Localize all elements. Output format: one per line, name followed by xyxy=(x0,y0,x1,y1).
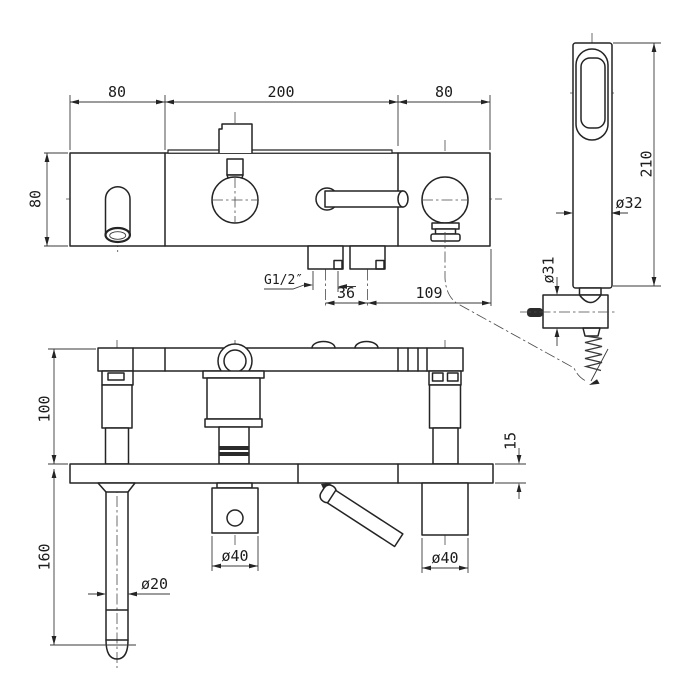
knob-stem xyxy=(227,159,243,175)
right-valve-stem xyxy=(433,428,458,464)
center-flange xyxy=(203,371,264,378)
dim-deck-thickness: 15 xyxy=(502,432,520,450)
inlet-fitting-2 xyxy=(350,246,385,269)
dim-handle-diameter: ø32 xyxy=(615,194,642,212)
dim-right-valve-diameter: ø40 xyxy=(431,549,458,567)
height-dim-lines xyxy=(44,153,68,246)
top-plate xyxy=(168,150,392,153)
thread-label: G1/2″ xyxy=(264,273,303,288)
dim-shower-length: 210 xyxy=(638,150,656,177)
faucet-technical-drawing: 80 200 80 80 G1/2″ 36 109 xyxy=(0,0,700,700)
dim-outlet-offset: 109 xyxy=(415,284,442,302)
dim-bracket-diameter: ø31 xyxy=(540,256,558,283)
lever-rod xyxy=(325,191,403,207)
technical-drawing-canvas: 80 200 80 80 G1/2″ 36 109 xyxy=(0,0,700,700)
center-seal-1 xyxy=(219,446,249,450)
center-lip xyxy=(205,419,262,427)
lever-grip xyxy=(328,490,403,546)
inlet-fitting-1 xyxy=(308,246,343,269)
left-valve-body xyxy=(102,385,132,428)
below-deck-dim-lines xyxy=(50,469,136,645)
left-valve-stem xyxy=(106,428,129,464)
above-deck-dim-lines xyxy=(48,349,96,464)
bracket-pin xyxy=(527,308,543,317)
hose-cone xyxy=(583,328,600,336)
shower-handle xyxy=(573,43,612,288)
dim-inlet-spacing: 36 xyxy=(337,284,355,302)
diverter-collar-1 xyxy=(432,223,459,229)
dim-width-center: 200 xyxy=(267,83,294,101)
deck-dim-lines xyxy=(495,448,526,499)
cartridge-block xyxy=(219,124,252,153)
wall-bracket xyxy=(543,295,608,328)
diverter-outlet xyxy=(431,234,460,241)
side-view xyxy=(70,340,493,668)
center-body xyxy=(207,378,260,419)
hose-arrow xyxy=(589,379,600,385)
dim-body-height: 80 xyxy=(27,190,45,208)
dim-pipe-diameter: ø20 xyxy=(141,575,168,593)
shower-neck xyxy=(580,288,602,295)
pipe-flare xyxy=(98,483,135,492)
deck-plate xyxy=(70,464,493,483)
underdeck-lever xyxy=(318,483,404,548)
top-extension-lines xyxy=(70,95,490,150)
dim-left-valve-diameter: ø40 xyxy=(221,547,248,565)
dim-length-below-deck: 160 xyxy=(36,543,54,570)
center-seal-2 xyxy=(219,452,249,456)
right-shank xyxy=(422,483,468,535)
center-stem xyxy=(219,427,249,464)
fitting-arcs xyxy=(312,342,378,349)
hand-shower xyxy=(520,33,617,385)
lever-end-cap xyxy=(398,191,408,207)
dim-width-right: 80 xyxy=(435,83,453,101)
dim-height-above-deck: 100 xyxy=(36,395,54,422)
dim-width-left: 80 xyxy=(108,83,126,101)
right-valve-body xyxy=(430,385,461,428)
